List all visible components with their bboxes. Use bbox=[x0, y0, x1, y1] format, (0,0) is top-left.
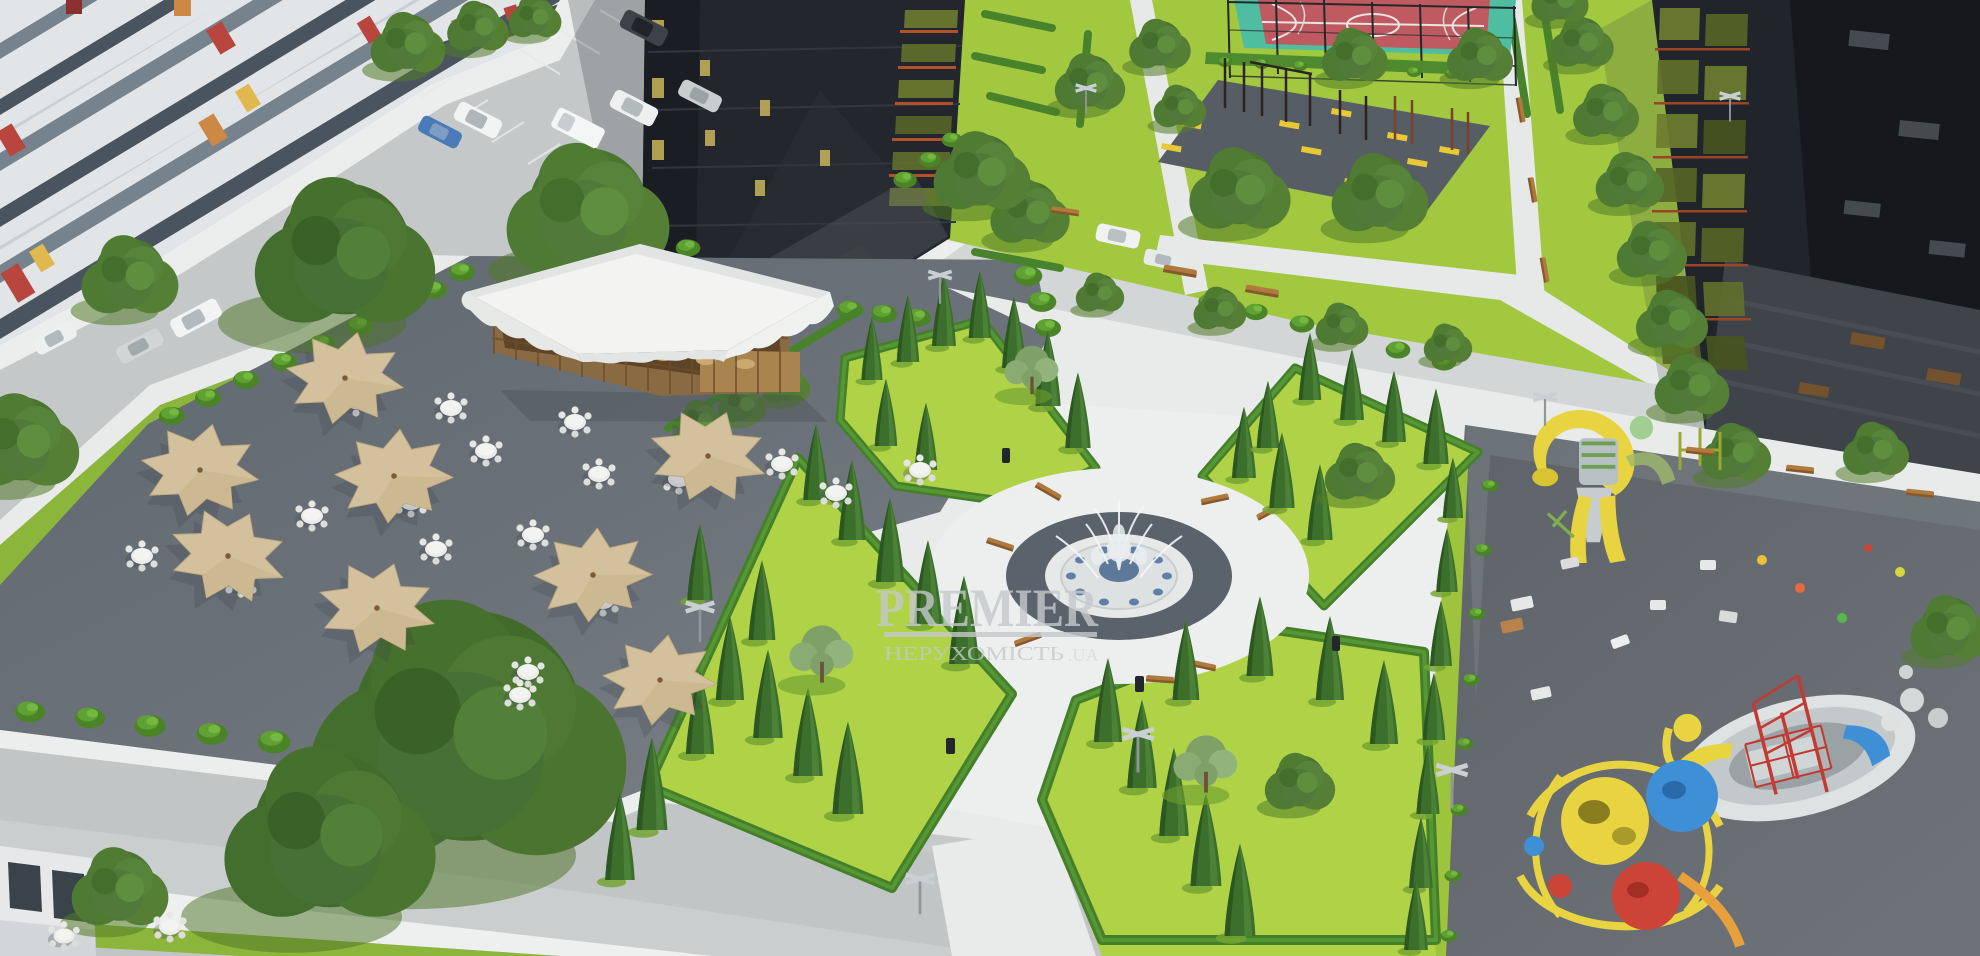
svg-text:НЕРУХОМІСТЬ: НЕРУХОМІСТЬ bbox=[884, 643, 1064, 665]
svg-text:PREMIER: PREMIER bbox=[876, 578, 1099, 638]
svg-text:.UA: .UA bbox=[1068, 645, 1099, 665]
